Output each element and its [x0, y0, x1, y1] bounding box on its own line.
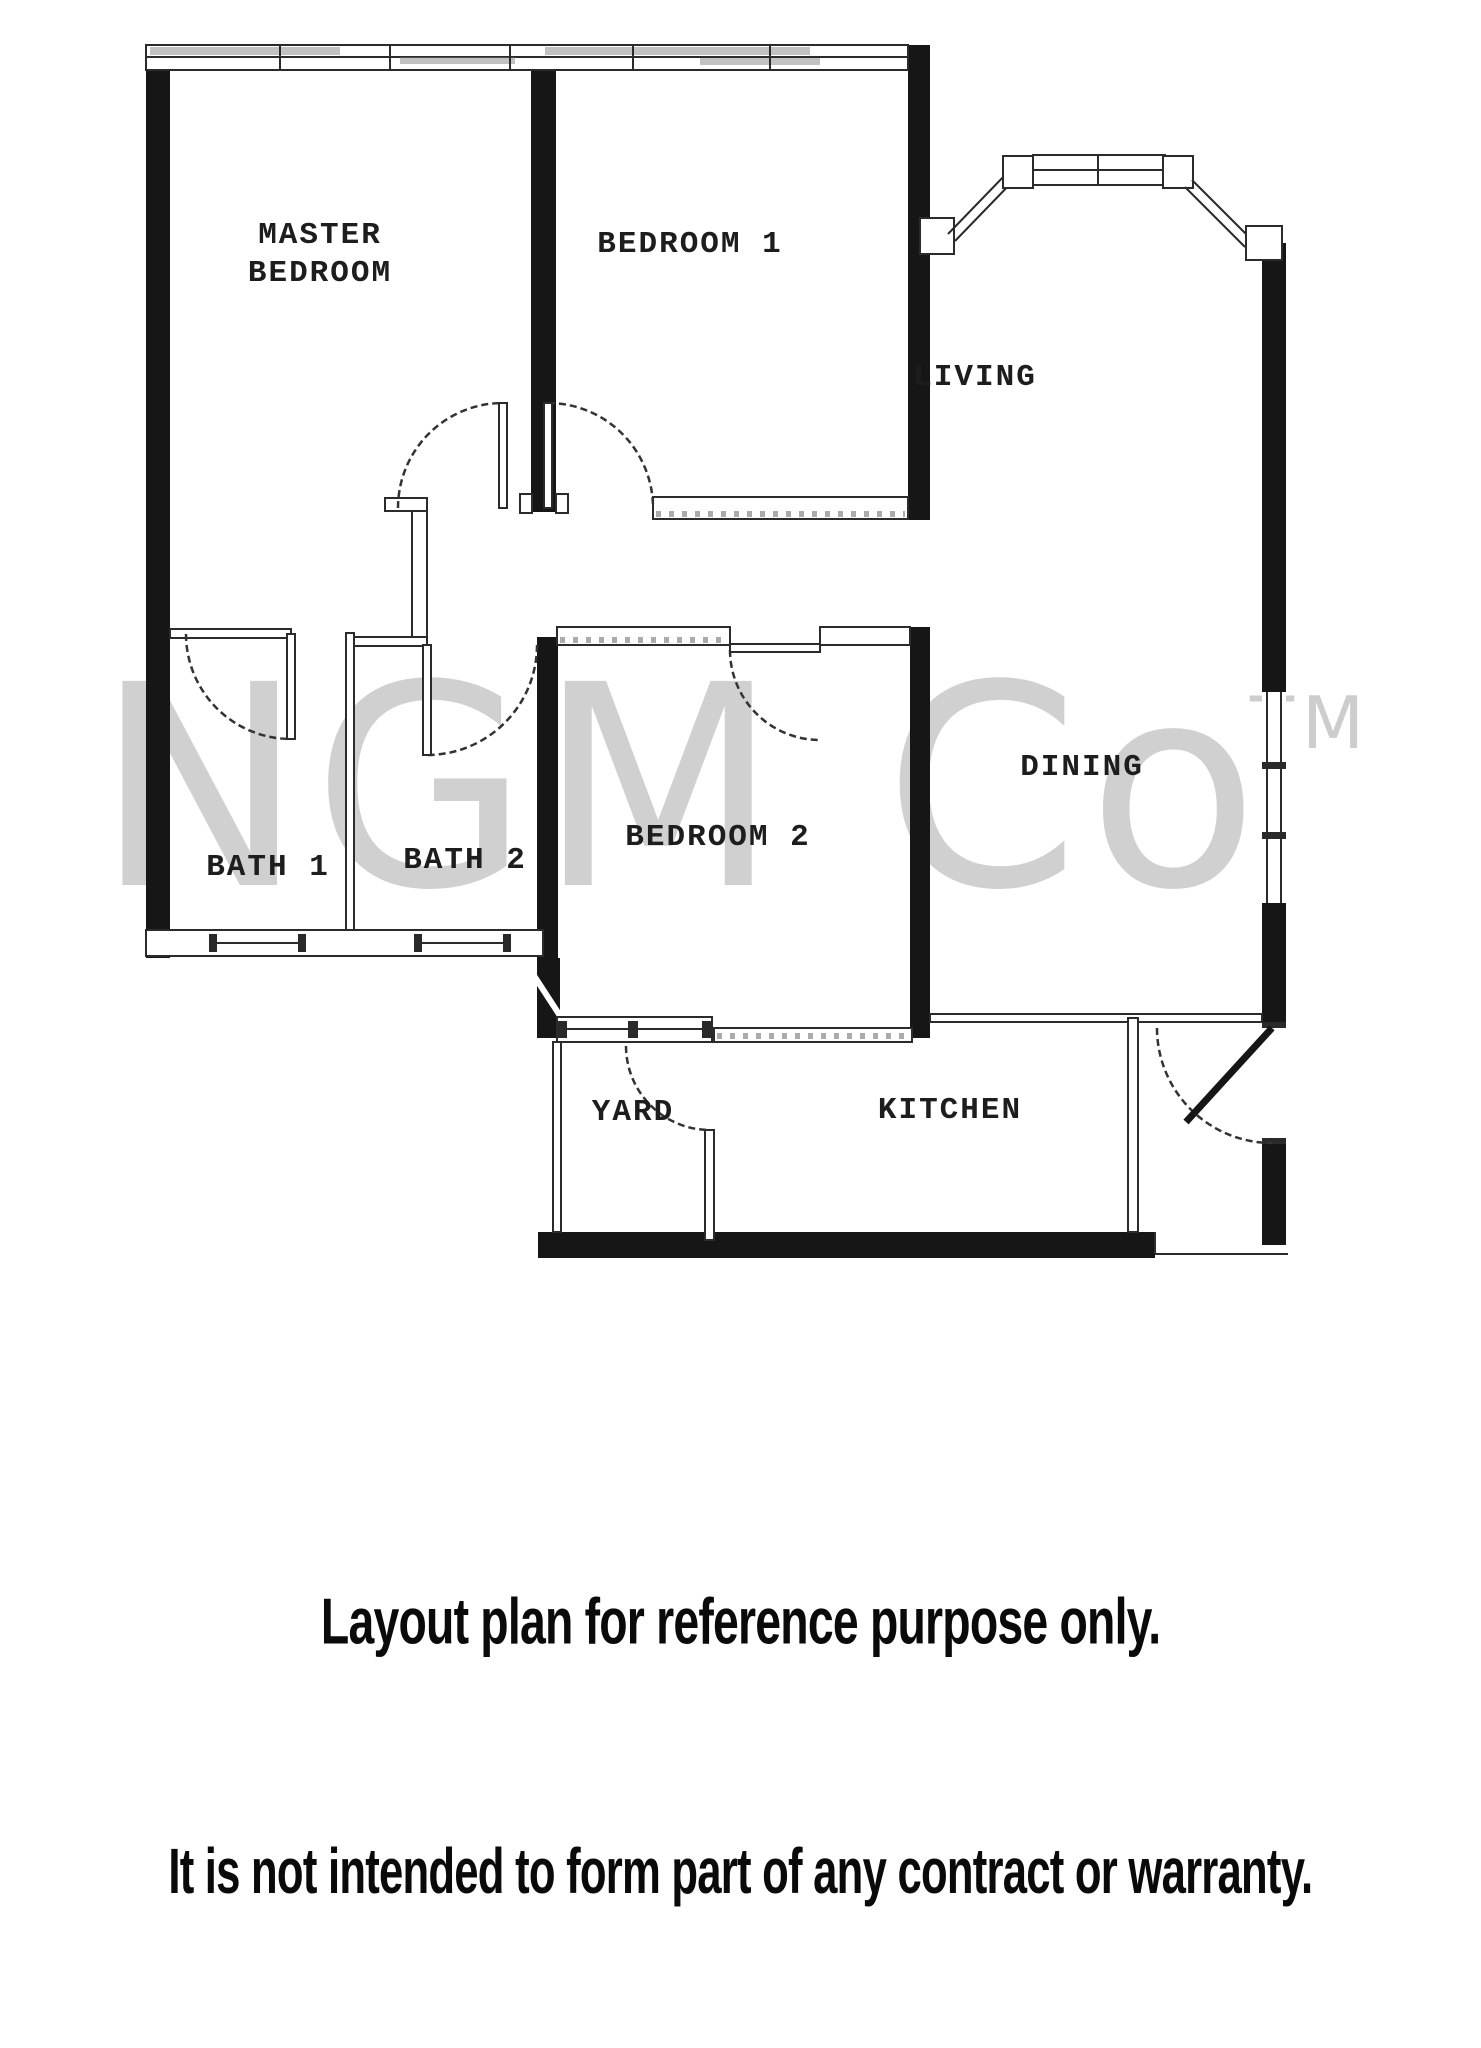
- bay-window-glass: [1192, 180, 1252, 240]
- bedroom1-door-panel: [544, 403, 552, 508]
- window-divider: [1262, 832, 1286, 839]
- floor-plan-drawing: NGM Co TM: [0, 0, 1481, 2048]
- window: [1262, 692, 1286, 903]
- room-label-bedroom1: BEDROOM 1: [597, 227, 782, 262]
- wall-thin: [930, 1014, 1262, 1022]
- wall-thin: [705, 1130, 714, 1240]
- wall-thin: [412, 511, 427, 637]
- wall: [908, 45, 930, 520]
- watermark-text: NGM Co: [95, 626, 1267, 952]
- wall-thin: [354, 637, 427, 646]
- scan-smudge: [150, 47, 340, 55]
- bay-corner-post: [920, 218, 954, 254]
- room-label-kitchen: KITCHEN: [878, 1093, 1022, 1128]
- footer-disclaimer-line-2: It is not intended to form part of any c…: [0, 1838, 1481, 1903]
- window-jamb: [628, 1021, 638, 1038]
- wall-thin: [553, 1042, 561, 1232]
- room-label-bath2: BATH 2: [403, 843, 527, 878]
- window-jamb: [557, 1021, 567, 1038]
- bay-corner-post: [1003, 156, 1033, 188]
- wall-thin: [820, 627, 910, 645]
- door-jamb: [1262, 1022, 1286, 1028]
- room-label-dining: DINING: [1020, 750, 1144, 785]
- bath2-door-panel: [423, 645, 431, 755]
- bay-corner-post: [1163, 156, 1193, 188]
- door-jamb: [1262, 1138, 1286, 1144]
- room-label-master-bedroom-line1: MASTER: [258, 218, 382, 253]
- bay-window: [920, 155, 1282, 260]
- window-jamb: [209, 934, 217, 952]
- room-label-living: LIVING: [913, 360, 1037, 395]
- room-label-yard: YARD: [592, 1095, 674, 1130]
- bedroom1-door-arc: [548, 403, 653, 508]
- wall: [146, 45, 170, 958]
- bay-window-glass: [948, 172, 1008, 234]
- wall-thin: [346, 633, 354, 955]
- scan-smudge: [700, 58, 820, 65]
- window-jamb: [503, 934, 511, 952]
- wall-thin: [385, 498, 427, 511]
- bedroom2-door-panel: [730, 644, 820, 652]
- scan-smudge: [400, 57, 515, 64]
- wall-thin: [1128, 1018, 1138, 1232]
- door-jamb: [556, 494, 568, 513]
- master-bedroom-door-panel: [499, 403, 507, 508]
- wall: [538, 1232, 1155, 1258]
- footer-disclaimer-line-2-text: It is not intended to form part of any c…: [169, 1833, 1313, 1908]
- entrance-door-panel: [1186, 1028, 1272, 1122]
- room-label-master-bedroom-line2: BEDROOM: [248, 256, 392, 291]
- room-label-bath1: BATH 1: [206, 850, 330, 885]
- room-label-bedroom2: BEDROOM 2: [625, 820, 810, 855]
- window-jamb: [298, 934, 306, 952]
- window-jamb: [702, 1021, 712, 1038]
- wall-thin: [653, 497, 908, 519]
- top-window-wall: [146, 45, 908, 70]
- bay-window-glass: [1185, 187, 1245, 247]
- footer-disclaimer-line-1-text: Layout plan for reference purpose only.: [321, 1584, 1160, 1659]
- window-jamb: [414, 934, 422, 952]
- footer-disclaimer-line-1: Layout plan for reference purpose only.: [0, 1588, 1481, 1655]
- wall-thin: [170, 629, 291, 638]
- entrance-opening: [1262, 1022, 1286, 1144]
- wall: [910, 627, 930, 1038]
- bay-corner-post: [1246, 226, 1282, 260]
- door-jamb: [520, 494, 532, 513]
- wall: [537, 637, 558, 958]
- master-bedroom-door-arc: [398, 403, 503, 508]
- window-divider: [1262, 762, 1286, 769]
- floor-plan-page: NGM Co TM: [0, 0, 1481, 2048]
- bath1-door-panel: [287, 634, 295, 739]
